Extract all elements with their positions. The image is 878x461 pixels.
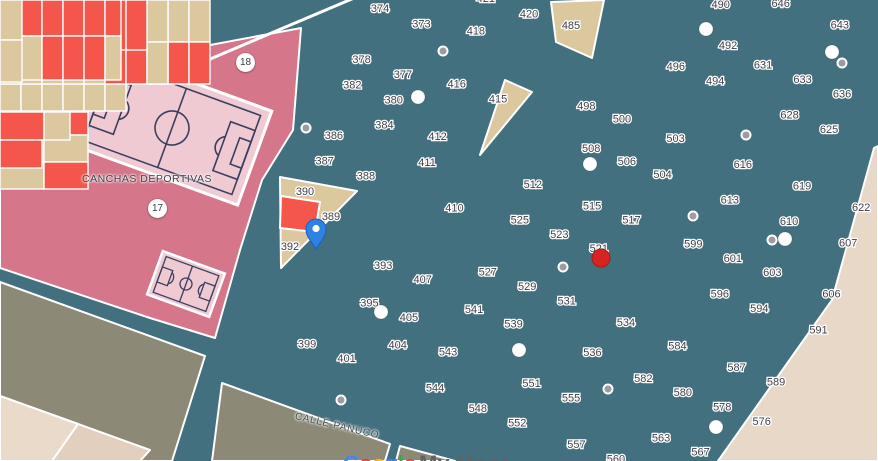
parcel-number: 596 — [711, 289, 729, 301]
parcel-number: 386 — [325, 130, 343, 142]
parcel-number: 373 — [412, 18, 430, 30]
parcel-number: 567 — [691, 447, 709, 459]
parcel-number: 412 — [428, 131, 446, 143]
parcel-number: 517 — [622, 215, 640, 227]
parcel-number: 534 — [617, 317, 635, 329]
parcel-number: 506 — [618, 156, 636, 168]
parcel-number: 421 — [477, 0, 495, 5]
parcel-number: 555 — [562, 392, 580, 404]
parcel-lot[interactable] — [147, 42, 168, 84]
parcel-number: 377 — [394, 69, 412, 81]
block-badge-18[interactable]: 18 — [236, 53, 255, 72]
parcel-number: 525 — [511, 215, 529, 227]
parcel-number: 576 — [753, 416, 771, 428]
parcel-number: 388 — [357, 170, 375, 182]
parcel-number: 523 — [550, 229, 568, 241]
parcel-number: 384 — [375, 120, 393, 132]
parcel-number: 500 — [613, 114, 631, 126]
parcel-number: 390 — [296, 186, 314, 198]
parcel-number: 405 — [400, 312, 418, 324]
parcel-number: 601 — [724, 253, 742, 265]
intersection-dot-gray[interactable] — [337, 396, 346, 405]
intersection-dot-gray[interactable] — [689, 212, 698, 221]
parcel-lot[interactable] — [63, 0, 84, 36]
parcel-393[interactable] — [42, 0, 63, 36]
parcel-number: 415 — [489, 93, 507, 105]
parcel-lot[interactable] — [147, 0, 168, 42]
parcel-number: 557 — [567, 439, 585, 451]
block-badge-17[interactable]: 17 — [148, 199, 167, 218]
parcel-405[interactable] — [84, 36, 105, 80]
parcel-number: 380 — [385, 94, 403, 106]
parcel-lot[interactable] — [168, 42, 189, 84]
parcel-number: 382 — [343, 79, 361, 91]
parcel-number: 496 — [667, 61, 685, 73]
parcel-lot[interactable] — [0, 40, 22, 82]
parcel-number: 515 — [583, 200, 601, 212]
parcel-lot[interactable] — [126, 0, 147, 50]
intersection-dot-gray[interactable] — [302, 124, 311, 133]
parcel-number: 560 — [607, 453, 625, 461]
parcel-lot[interactable] — [44, 112, 70, 140]
map-viewport[interactable]: 3743733783773823803843863873884184164154… — [0, 0, 878, 461]
parcel-number: 416 — [448, 78, 466, 90]
parcel-number: 613 — [721, 195, 739, 207]
pin-hole — [312, 225, 319, 232]
parcel-lot[interactable] — [168, 0, 189, 42]
parcel-number: 410 — [445, 203, 463, 215]
parcel-number: 619 — [793, 180, 811, 192]
intersection-dot-gray[interactable] — [439, 47, 448, 56]
parcel-number: 389 — [322, 211, 340, 223]
google-watermark-letter: G — [343, 451, 360, 461]
parcel-number: 643 — [831, 19, 849, 31]
parcel-number: 603 — [763, 267, 781, 279]
parcel-number: 580 — [674, 387, 692, 399]
google-watermark: Google My Maps — [343, 451, 512, 461]
parcel-number: 508 — [582, 143, 600, 155]
parcel-number: 492 — [719, 40, 737, 52]
parcel-number: 498 — [577, 101, 595, 113]
intersection-dot-white[interactable] — [709, 420, 723, 434]
parcel-number: 543 — [439, 347, 457, 359]
parcel-number: 587 — [727, 362, 745, 374]
parcel-number: 544 — [426, 382, 444, 394]
intersection-dot-white[interactable] — [512, 343, 526, 357]
parcel-number: 607 — [839, 238, 857, 250]
parcel-412[interactable] — [0, 112, 44, 140]
parcel-number: 606 — [822, 289, 840, 301]
intersection-dot-white[interactable] — [411, 90, 425, 104]
parcel-number: 578 — [713, 402, 731, 414]
parcel-number: 633 — [793, 74, 811, 86]
parcel-number: 625 — [820, 124, 838, 136]
parcel-410[interactable] — [0, 0, 22, 40]
parcel-number: 490 — [711, 0, 729, 11]
google-watermark-letter: o — [372, 451, 385, 461]
parcel-lot[interactable] — [189, 0, 210, 42]
intersection-dot-white[interactable] — [825, 45, 839, 59]
parcel-number: 616 — [734, 159, 752, 171]
parcel-number: 494 — [706, 75, 724, 87]
intersection-dot-gray[interactable] — [838, 59, 847, 68]
parcel-number: 646 — [771, 0, 789, 10]
parcel-number: 485 — [562, 20, 580, 32]
parcel-number: 552 — [508, 418, 526, 430]
intersection-dot-white[interactable] — [583, 157, 597, 171]
parcel-number: 610 — [780, 216, 798, 228]
intersection-dot-white[interactable] — [374, 305, 388, 319]
parcel-number: 527 — [479, 267, 497, 279]
parcel-lot[interactable] — [63, 36, 84, 80]
parcel-number: 503 — [666, 133, 684, 145]
parcel-number: 378 — [352, 54, 370, 66]
parcel-lot[interactable] — [105, 0, 121, 36]
google-watermark-letter: e — [404, 451, 416, 461]
parcel-number: 512 — [524, 179, 542, 191]
parcel-number: 599 — [684, 238, 702, 250]
google-watermark-letter: g — [385, 451, 398, 461]
parcel-lot[interactable] — [21, 36, 42, 80]
intersection-dot-white[interactable] — [699, 22, 713, 36]
intersection-dot-gray[interactable] — [742, 131, 751, 140]
parcel-number: 418 — [467, 26, 485, 38]
parcel-number: 591 — [809, 324, 827, 336]
parcel-560[interactable] — [189, 42, 210, 84]
intersection-dot-gray[interactable] — [604, 385, 613, 394]
parcel-number: 393 — [374, 260, 392, 272]
parcel-lot[interactable] — [21, 0, 42, 36]
parcel-number: 548 — [469, 403, 487, 415]
map-canvas[interactable]: 3743733783773823803843863873884184164154… — [0, 0, 878, 461]
area-label-canchas-deportivas: CANCHAS DEPORTIVAS — [82, 173, 212, 185]
parcel-number: 399 — [298, 338, 316, 350]
parcel-395[interactable] — [42, 36, 63, 80]
parcel-number: 404 — [389, 339, 407, 351]
parcel-number: 420 — [520, 9, 538, 21]
parcel-number: 531 — [558, 295, 576, 307]
parcel-number: 551 — [522, 378, 540, 390]
parcel-number: 392 — [281, 241, 299, 253]
parcel-number: 387 — [315, 155, 333, 167]
parcel-number: 411 — [418, 157, 436, 169]
parcel-number: 539 — [504, 319, 522, 331]
google-watermark-letter: My Maps — [419, 451, 512, 461]
intersection-dot-gray[interactable] — [559, 263, 568, 272]
parcel-number: 541 — [465, 304, 483, 316]
parcel-number: 529 — [518, 281, 536, 293]
intersection-dot-gray[interactable] — [768, 236, 777, 245]
selected-parcel-marker[interactable] — [592, 249, 610, 267]
parcel-number: 594 — [750, 303, 768, 315]
parcel-number: 582 — [634, 373, 652, 385]
parcel-number: 563 — [652, 432, 670, 444]
parcel-number: 628 — [780, 110, 798, 122]
parcel-number: 374 — [371, 3, 389, 15]
parcel-number: 631 — [754, 60, 772, 72]
parcel-407[interactable] — [84, 0, 105, 36]
intersection-dot-white[interactable] — [778, 232, 792, 246]
parcel-number: 407 — [413, 274, 431, 286]
parcel-number: 622 — [852, 202, 870, 214]
parcel-number: 536 — [583, 347, 601, 359]
parcel-411[interactable] — [0, 140, 42, 168]
parcel-lot[interactable] — [105, 36, 121, 80]
parcel-number: 584 — [668, 341, 686, 353]
parcel-number: 589 — [767, 376, 785, 388]
parcel-number: 636 — [833, 88, 851, 100]
google-watermark-letter: o — [359, 451, 372, 461]
parcel-number: 401 — [337, 353, 355, 365]
parcel-number: 504 — [653, 169, 671, 181]
